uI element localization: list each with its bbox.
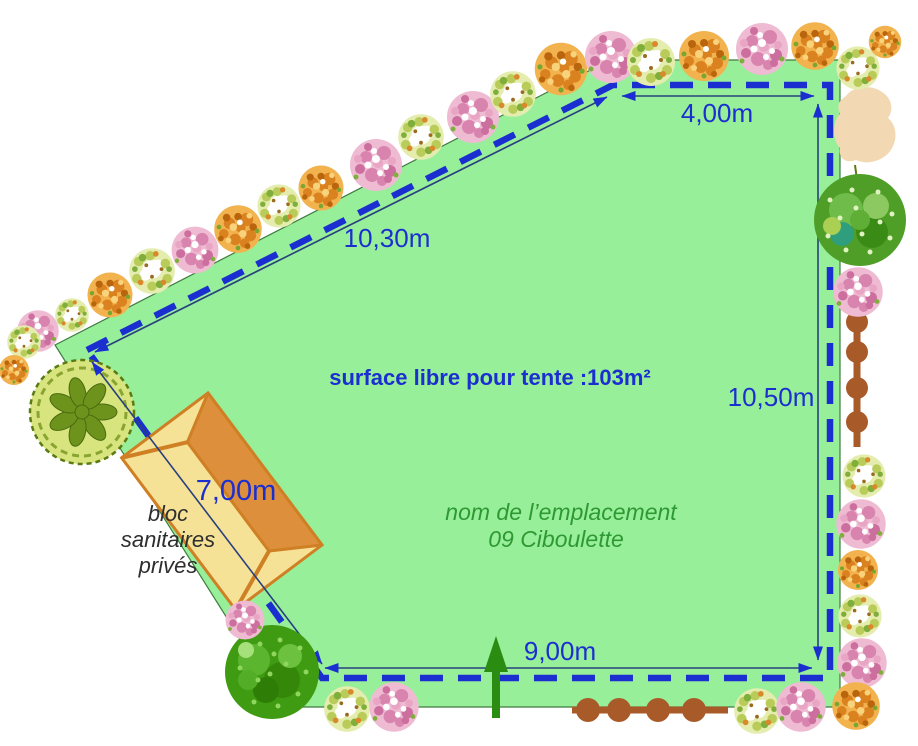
tree-right	[814, 174, 906, 266]
building-label-line1: bloc	[148, 501, 188, 526]
campsite-plan: 4,00m 10,30m 10,50m 9,00m 7,00m surface …	[0, 0, 918, 746]
dimension-right: 10,50m	[728, 382, 815, 412]
dimension-building-side: 7,00m	[196, 475, 277, 507]
building-label-line2: sanitaires	[121, 527, 215, 552]
site-name-line1: nom de l’emplacement	[445, 499, 678, 525]
site-name-line2: 09 Ciboulette	[488, 526, 624, 552]
dimension-diagonal: 10,30m	[344, 223, 431, 253]
plan-drawing: 4,00m 10,30m 10,50m 9,00m 7,00m surface …	[0, 0, 918, 746]
ornamental-tree	[30, 360, 134, 464]
bush-bottom	[225, 625, 319, 719]
building-label-line3: privés	[138, 553, 198, 578]
dimension-bottom: 9,00m	[524, 636, 596, 666]
free-surface-label: surface libre pour tente :103m²	[329, 365, 651, 390]
stepping-stone-path-right	[846, 311, 868, 447]
dimension-top: 4,00m	[681, 98, 753, 128]
gravel-pad	[834, 87, 895, 162]
